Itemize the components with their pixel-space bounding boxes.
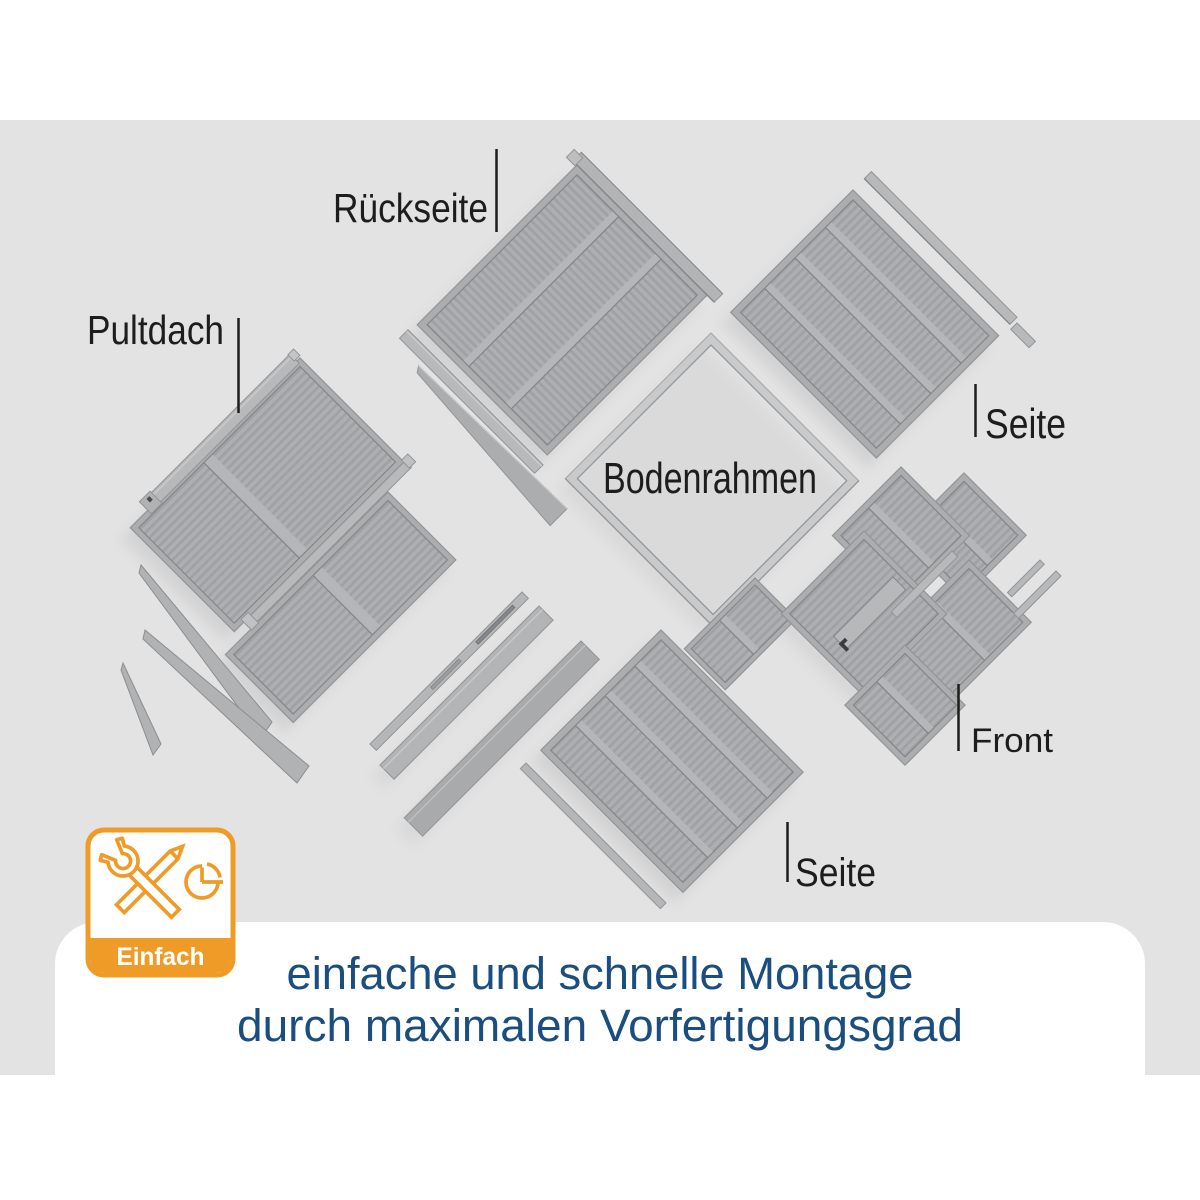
svg-text:Bodenrahmen: Bodenrahmen xyxy=(603,454,817,503)
svg-text:Seite: Seite xyxy=(985,400,1066,447)
svg-text:Einfach: Einfach xyxy=(117,943,205,971)
svg-text:einfache und schnelle Montage: einfache und schnelle Montage xyxy=(287,948,914,999)
svg-text:Seite: Seite xyxy=(795,851,876,895)
svg-text:durch maximalen Vorfertigungsg: durch maximalen Vorfertigungsgrad xyxy=(237,1000,963,1051)
svg-text:Pultdach: Pultdach xyxy=(87,307,224,353)
svg-text:Rückseite: Rückseite xyxy=(333,185,488,231)
svg-text:Front: Front xyxy=(971,722,1054,760)
